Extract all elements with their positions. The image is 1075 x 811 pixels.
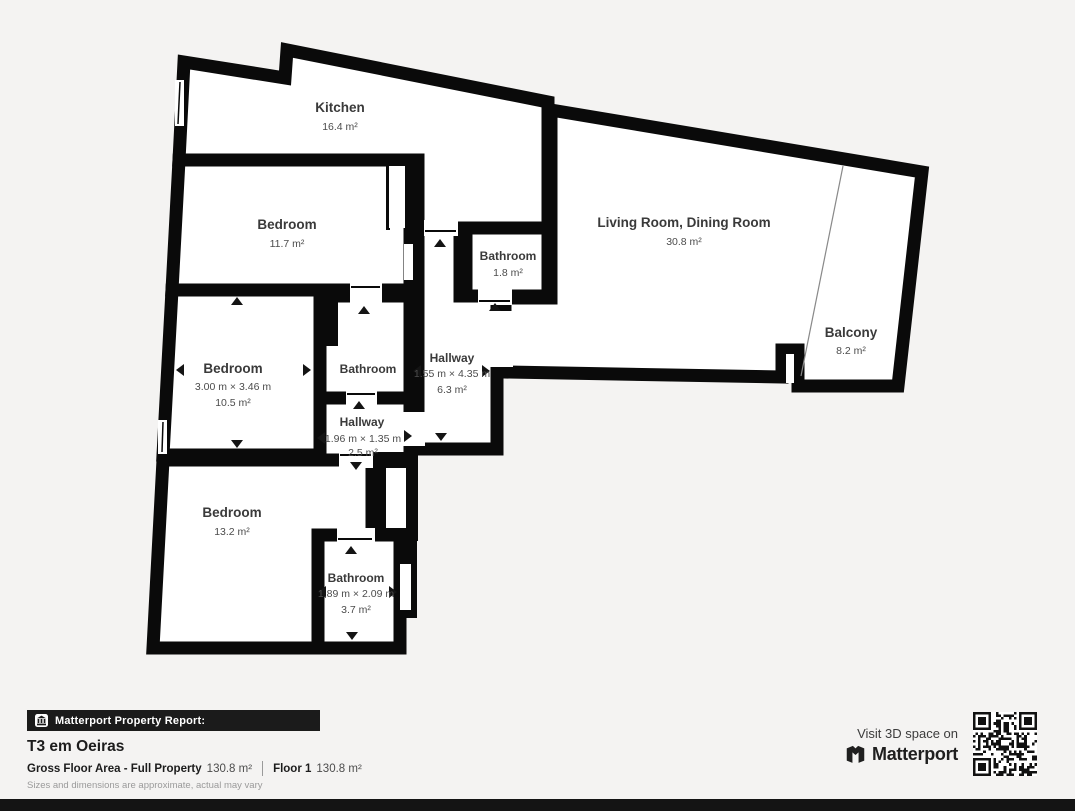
property-title: T3 em Oeiras xyxy=(27,738,124,756)
balcony-name: Balcony xyxy=(825,325,878,340)
area-summary: Gross Floor Area - Full Property 130.8 m… xyxy=(27,761,362,776)
bump-window-inner xyxy=(400,564,411,610)
bedroom-top-area: 11.7 m² xyxy=(270,238,305,250)
living-dining-name: Living Room, Dining Room xyxy=(597,215,770,230)
report-badge: Matterport Property Report: xyxy=(27,710,320,731)
bathroom-small-area: 1.8 m² xyxy=(493,267,523,279)
window xyxy=(404,244,413,280)
hallway-small-dims: 1.96 m × 1.35 m xyxy=(325,433,401,445)
brand-name: Matterport xyxy=(872,744,958,765)
living-dining-area: 30.8 m² xyxy=(666,236,702,248)
floor-label: Floor 1 xyxy=(273,763,311,775)
floor-value: 130.8 m² xyxy=(316,763,361,775)
bedroom-bottom-area: 13.2 m² xyxy=(214,526,250,538)
building-icon xyxy=(35,714,48,727)
closet-niche xyxy=(386,468,406,528)
qr-code xyxy=(973,712,1037,776)
door-opening xyxy=(424,220,458,236)
bedroom-bottom-name: Bedroom xyxy=(202,505,261,520)
bathroom-bottom-name: Bathroom xyxy=(328,571,385,585)
bottom-bar xyxy=(0,799,1075,811)
floor-plan: Kitchen 16.4 m² Bedroom 11.7 m² Bathroom… xyxy=(0,0,1075,811)
door-opening xyxy=(478,289,512,305)
visit-3d-text: Visit 3D space on xyxy=(790,726,958,741)
balcony-door-slot xyxy=(786,354,794,383)
bedroom-middle-dims: 3.00 m × 3.46 m xyxy=(195,381,271,393)
bathroom-bottom-area: 3.7 m² xyxy=(341,604,371,616)
door-opening xyxy=(489,311,513,367)
gross-floor-area-value: 130.8 m² xyxy=(207,763,252,775)
gross-floor-area-label: Gross Floor Area - Full Property xyxy=(27,763,202,775)
matterport-logo-icon xyxy=(845,744,866,765)
bathroom-middle-name: Bathroom xyxy=(340,362,397,376)
balcony-area: 8.2 m² xyxy=(836,345,866,357)
wall-stub-bathroom-middle xyxy=(322,302,338,346)
kitchen-area: 16.4 m² xyxy=(322,121,358,133)
brand-row: Matterport xyxy=(790,744,958,765)
visit-3d-block: Visit 3D space on Matterport xyxy=(790,726,958,765)
window-line xyxy=(162,422,163,452)
bedroom-top-name: Bedroom xyxy=(257,217,316,232)
hallway-small-area: 2.5 m² xyxy=(348,447,378,459)
disclaimer-text: Sizes and dimensions are approximate, ac… xyxy=(27,780,263,791)
hallway-main-dims: 1.55 m × 4.35 m xyxy=(414,368,490,380)
wall-pocket xyxy=(389,166,405,228)
divider xyxy=(262,761,263,776)
bedroom-middle-name: Bedroom xyxy=(203,361,262,376)
property-report-page: Kitchen 16.4 m² Bedroom 11.7 m² Bathroom… xyxy=(0,0,1075,811)
hallway-main-area: 6.3 m² xyxy=(437,384,467,396)
hallway-main-name: Hallway xyxy=(430,351,475,365)
report-badge-label: Matterport Property Report: xyxy=(55,715,205,727)
door-opening xyxy=(403,412,425,446)
kitchen-name: Kitchen xyxy=(315,100,365,115)
bathroom-bottom-dims: 1.89 m × 2.09 m xyxy=(318,588,394,600)
bathroom-small-name: Bathroom xyxy=(480,249,537,263)
hallway-small-name: Hallway xyxy=(340,415,385,429)
bedroom-middle-area: 10.5 m² xyxy=(215,397,251,409)
